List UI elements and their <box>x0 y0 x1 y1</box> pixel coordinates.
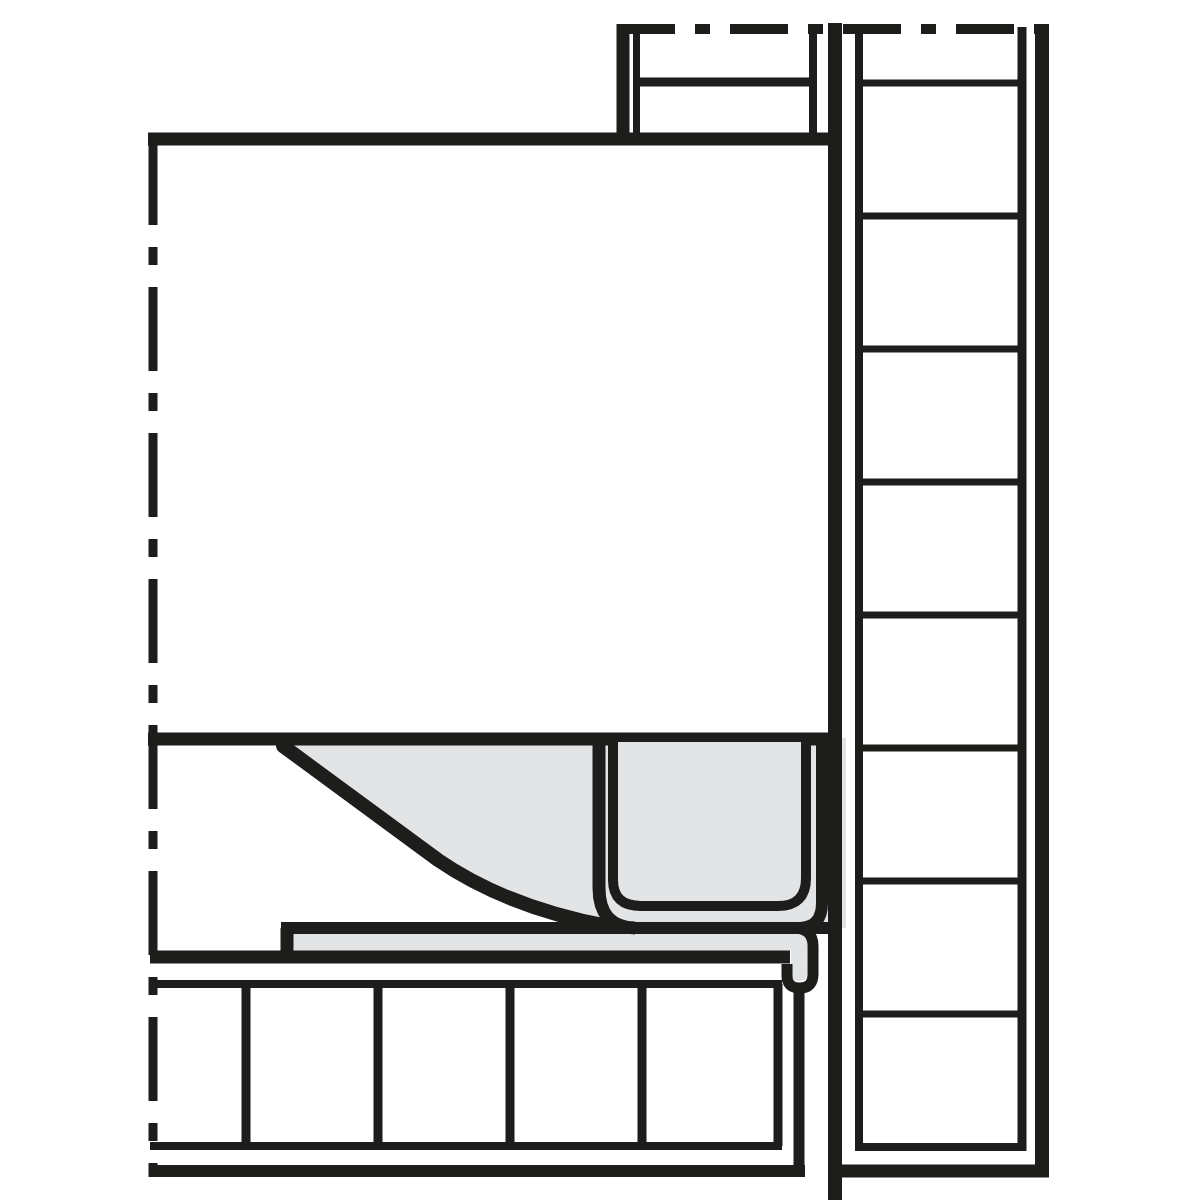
cross-section-diagram <box>0 0 1200 1200</box>
technical-drawing-page <box>0 0 1200 1200</box>
channel-inner-profile <box>613 742 806 906</box>
end-cap-notch-fill <box>791 935 807 981</box>
